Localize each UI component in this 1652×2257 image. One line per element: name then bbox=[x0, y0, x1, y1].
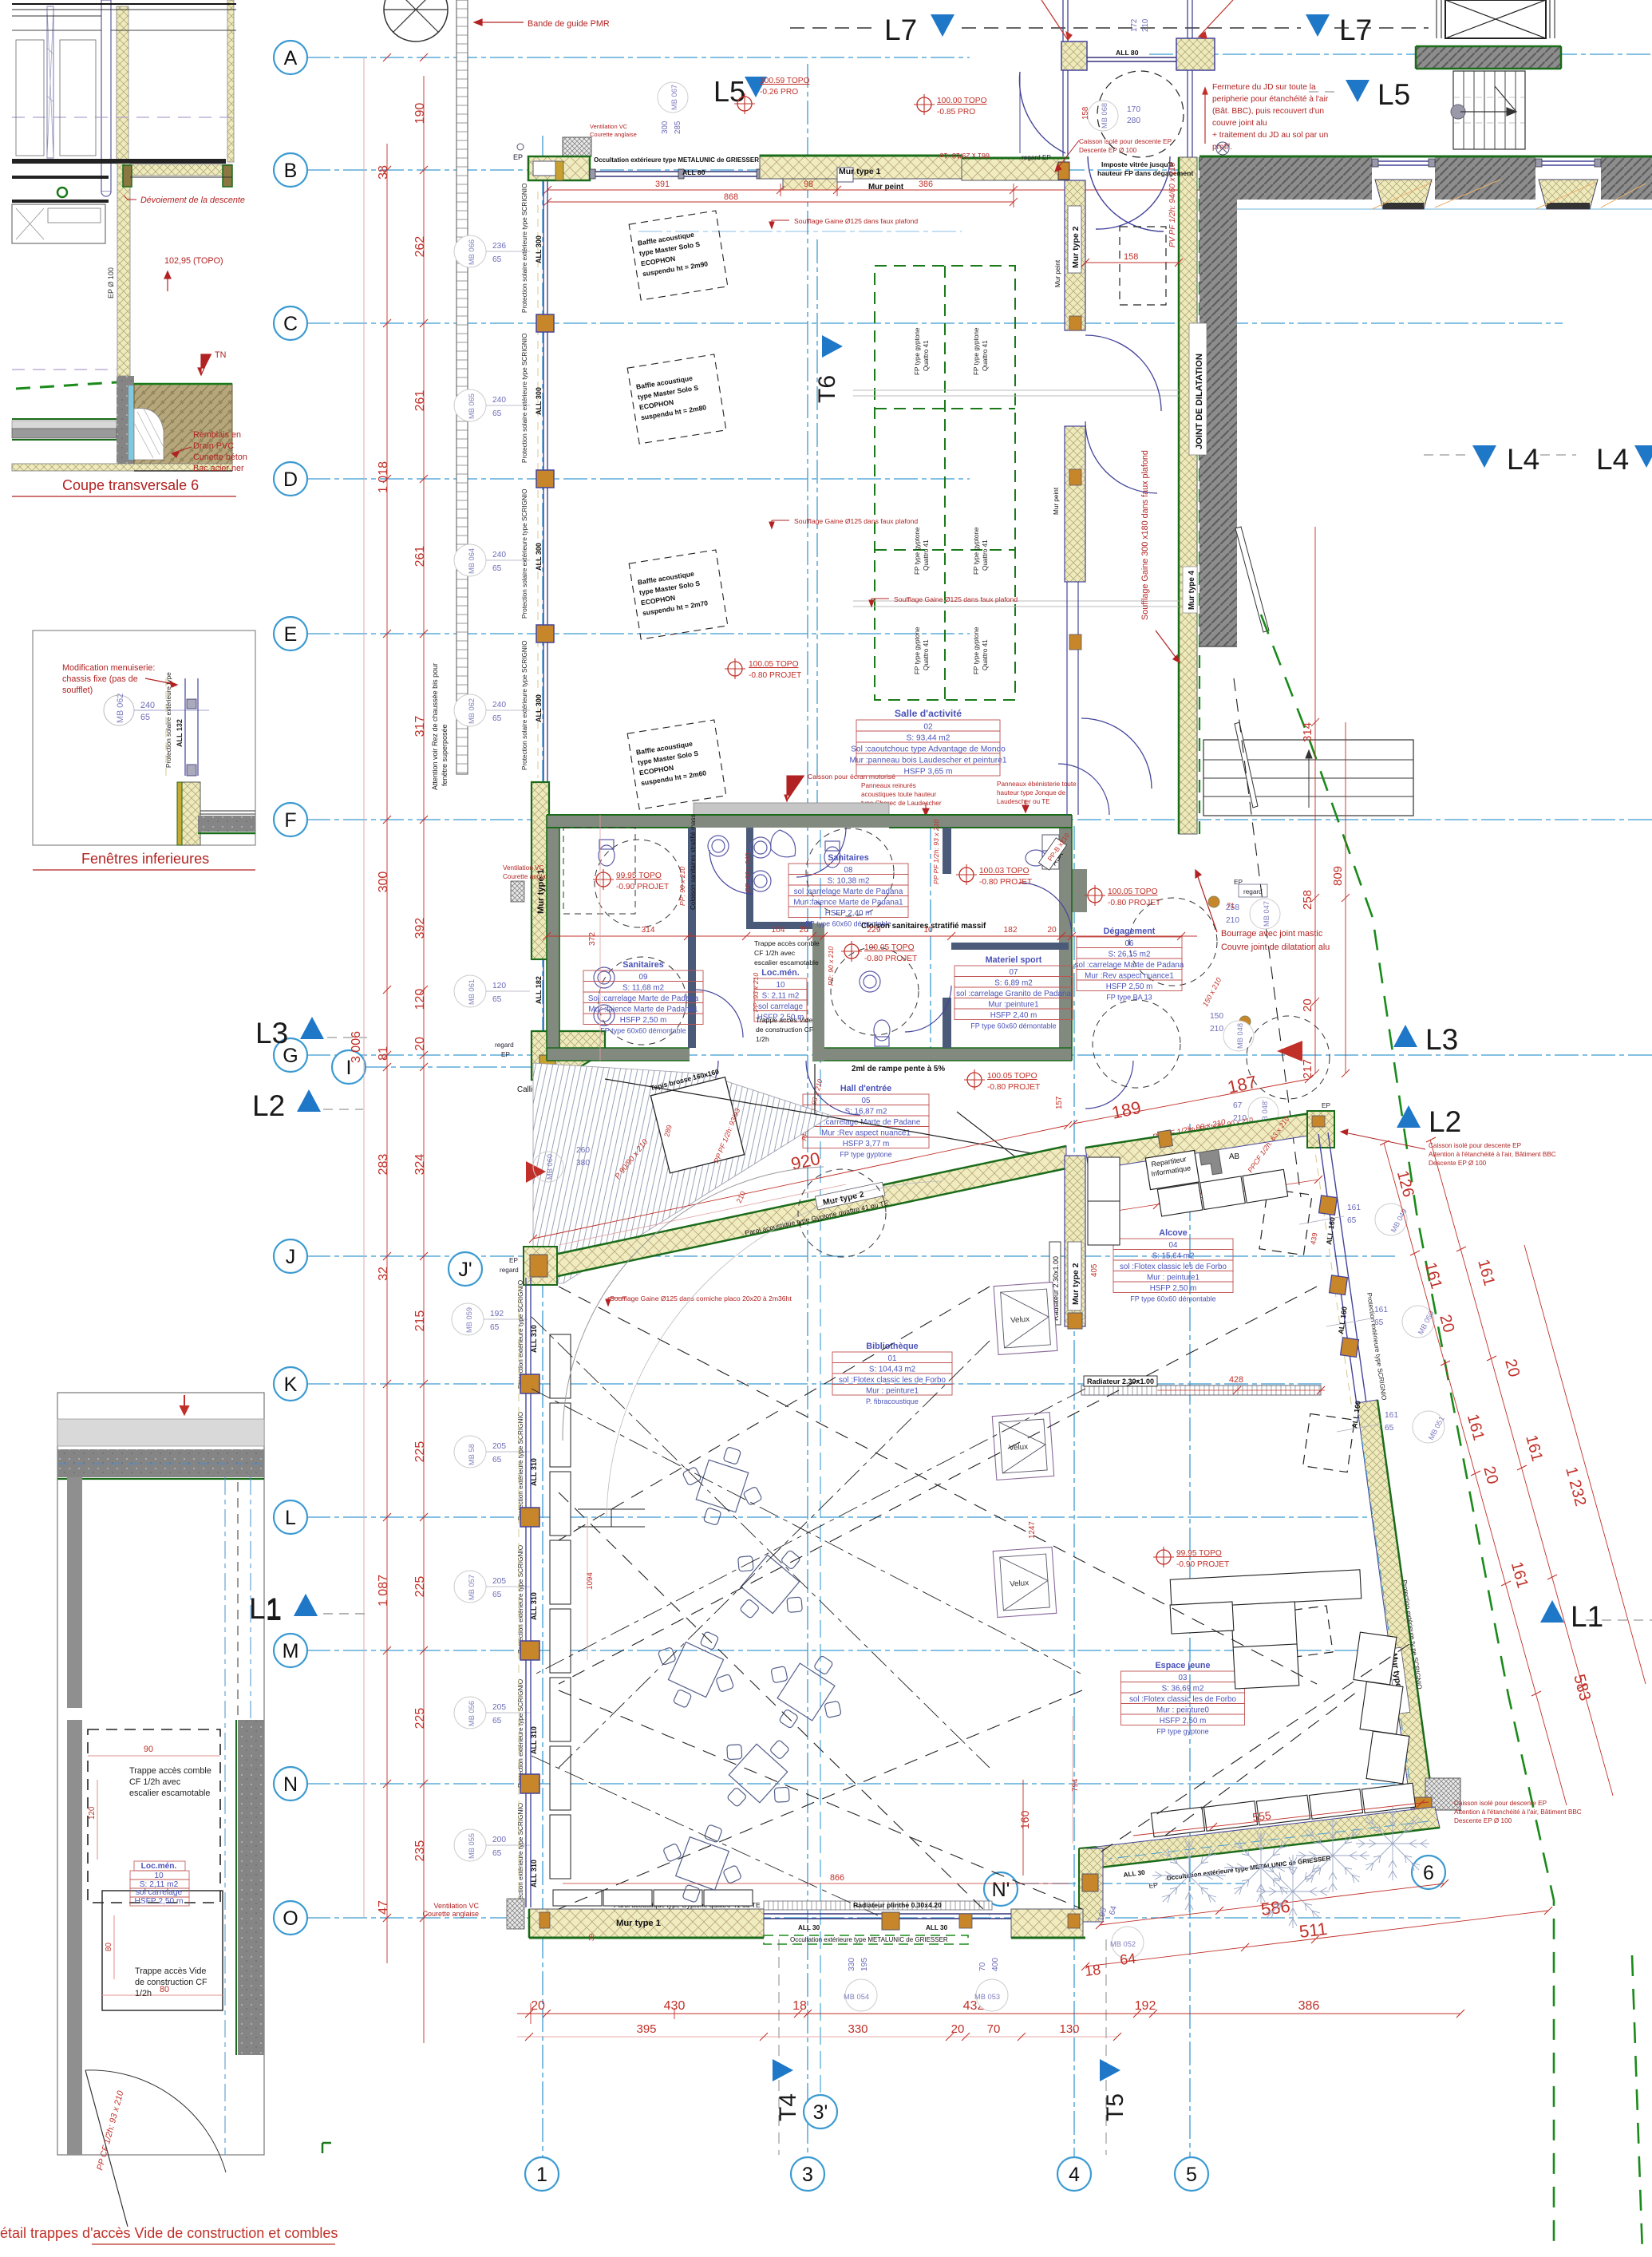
svg-text:Mur :Rev aspect nuancé1: Mur :Rev aspect nuancé1 bbox=[821, 1129, 911, 1138]
svg-text:20: 20 bbox=[1047, 926, 1057, 935]
svg-text:Protection extérieure type SCR: Protection extérieure type SCRIGNIO bbox=[517, 1803, 524, 1911]
svg-text:regard: regard bbox=[500, 1267, 519, 1274]
svg-text:Trappe accès comble: Trappe accès comble bbox=[129, 1766, 211, 1776]
svg-text:229: 229 bbox=[867, 926, 881, 935]
svg-text:99.95 TOPO: 99.95 TOPO bbox=[616, 872, 662, 880]
svg-text:Attention voir Rez de chaussée: Attention voir Rez de chaussée bis pour bbox=[431, 663, 439, 790]
svg-text:ALL 300: ALL 300 bbox=[535, 235, 543, 263]
svg-text:Sol :carrelage Marte de Padana: Sol :carrelage Marte de Padana bbox=[588, 994, 699, 1003]
svg-text:regard: regard bbox=[495, 1042, 514, 1049]
svg-text:sol :Flotex classic les de For: sol :Flotex classic les de Forbo bbox=[1120, 1263, 1227, 1271]
svg-text:FP type 60x60 démontable: FP type 60x60 démontable bbox=[970, 1022, 1056, 1030]
svg-text:sol carrelage: sol carrelage bbox=[136, 1888, 183, 1897]
svg-text:Laudescher ou TE: Laudescher ou TE bbox=[997, 798, 1050, 805]
svg-text:hauteur FP dans dégagement: hauteur FP dans dégagement bbox=[1097, 169, 1193, 177]
svg-text:-0.85 PRO: -0.85 PRO bbox=[937, 108, 975, 117]
svg-text:Mur type 2: Mur type 2 bbox=[1071, 226, 1081, 268]
svg-text:32: 32 bbox=[377, 1267, 390, 1281]
svg-text:Radiateur 2.30x1.00: Radiateur 2.30x1.00 bbox=[1087, 1378, 1154, 1385]
svg-text:FP type gyptone: FP type gyptone bbox=[973, 327, 980, 375]
svg-text:Mur :Rev aspect nuance1: Mur :Rev aspect nuance1 bbox=[1085, 972, 1174, 981]
svg-text:Soufflage Gaine Ø125 dans faux: Soufflage Gaine Ø125 dans faux plafond bbox=[794, 517, 918, 525]
svg-text:ALL 132: ALL 132 bbox=[176, 719, 184, 747]
svg-text:236: 236 bbox=[492, 242, 506, 251]
svg-text:300: 300 bbox=[377, 872, 390, 893]
svg-text:Occultation extérieure type ME: Occultation extérieure type METALUNIC de… bbox=[790, 1936, 948, 1943]
svg-text:FP type gyptone: FP type gyptone bbox=[914, 327, 921, 375]
svg-text:Descente EP Ø 100: Descente EP Ø 100 bbox=[1454, 1817, 1512, 1824]
svg-text:160: 160 bbox=[1018, 1810, 1031, 1829]
svg-text:Soufflage Gaine Ø125 dans faux: Soufflage Gaine Ø125 dans faux plafond bbox=[894, 595, 1018, 603]
svg-text:ALL 80: ALL 80 bbox=[682, 168, 705, 176]
svg-text:Bande de guide PMR: Bande de guide PMR bbox=[528, 19, 610, 29]
svg-text:Quattro 41: Quattro 41 bbox=[982, 639, 989, 670]
svg-text:06: 06 bbox=[1125, 939, 1134, 948]
svg-text:1 087: 1 087 bbox=[377, 1575, 390, 1607]
svg-text:S: 26,15 m2: S: 26,15 m2 bbox=[1109, 951, 1151, 959]
svg-text:20: 20 bbox=[1301, 998, 1314, 1012]
svg-text:FP type BA 13: FP type BA 13 bbox=[1106, 994, 1152, 1002]
svg-text:Couvre joint de dilatation alu: Couvre joint de dilatation alu bbox=[1221, 943, 1330, 952]
svg-text:130: 130 bbox=[1059, 2022, 1079, 2036]
svg-text:20: 20 bbox=[951, 2022, 965, 2036]
svg-text:MB 064: MB 064 bbox=[468, 548, 476, 574]
svg-text:T4: T4 bbox=[775, 2093, 801, 2121]
svg-text:L: L bbox=[285, 1507, 296, 1529]
svg-text:O: O bbox=[283, 1907, 298, 1930]
svg-text:JOINT DE DILATATION: JOINT DE DILATATION bbox=[1195, 354, 1204, 449]
svg-text:102,95 (TOPO): 102,95 (TOPO) bbox=[164, 256, 223, 266]
svg-text:330: 330 bbox=[848, 2022, 867, 2036]
svg-text:210: 210 bbox=[1141, 18, 1150, 32]
svg-text:99.95 TOPO: 99.95 TOPO bbox=[1176, 1549, 1222, 1558]
svg-text:FP type 60x60 démontable: FP type 60x60 démontable bbox=[1130, 1295, 1215, 1303]
svg-text:EP: EP bbox=[501, 1051, 510, 1058]
svg-text:-0.80 PROJET: -0.80 PROJET bbox=[864, 955, 917, 963]
svg-text:soufflet): soufflet) bbox=[62, 686, 93, 695]
svg-text:Cunette béton: Cunette béton bbox=[193, 453, 247, 462]
svg-text:Loc.mén.: Loc.mén. bbox=[141, 1862, 177, 1871]
svg-text:HSFP 2,40 m: HSFP 2,40 m bbox=[825, 909, 872, 918]
svg-text:Quattro 41: Quattro 41 bbox=[923, 340, 930, 371]
svg-text:Mur type 1: Mur type 1 bbox=[616, 1919, 661, 1928]
svg-text:MB 062: MB 062 bbox=[116, 694, 125, 723]
svg-text:65: 65 bbox=[492, 1591, 502, 1599]
svg-text:314: 314 bbox=[1301, 722, 1314, 742]
svg-text:MB 056: MB 056 bbox=[468, 1701, 476, 1726]
svg-text:400: 400 bbox=[991, 1958, 1000, 1971]
svg-text:428: 428 bbox=[1229, 1375, 1243, 1385]
svg-text:HSFP 3,65 m: HSFP 3,65 m bbox=[904, 768, 953, 777]
svg-text:Mur peint: Mur peint bbox=[1053, 487, 1060, 515]
svg-text:L4: L4 bbox=[1507, 443, 1539, 476]
svg-text:CF 1/2h avec: CF 1/2h avec bbox=[129, 1777, 181, 1787]
svg-text:L7: L7 bbox=[884, 14, 917, 46]
svg-text:escalier escamotable: escalier escamotable bbox=[754, 959, 819, 966]
svg-text:Bibliothèque: Bibliothèque bbox=[866, 1342, 918, 1351]
svg-text:MB 060: MB 060 bbox=[546, 1154, 554, 1180]
svg-text:18: 18 bbox=[792, 1999, 807, 2013]
svg-text:261: 261 bbox=[413, 390, 427, 412]
svg-text:258: 258 bbox=[1226, 903, 1239, 912]
svg-text:Attention à l'étanchéité à l'a: Attention à l'étanchéité à l'air, Bâtime… bbox=[1454, 1808, 1582, 1816]
svg-text:120: 120 bbox=[88, 1806, 97, 1820]
svg-text:L2: L2 bbox=[1429, 1105, 1461, 1138]
svg-text:372: 372 bbox=[588, 932, 597, 946]
svg-text:09: 09 bbox=[639, 973, 648, 982]
svg-text:235: 235 bbox=[413, 1840, 427, 1862]
svg-text:190: 190 bbox=[413, 103, 427, 125]
svg-text:200: 200 bbox=[492, 1836, 506, 1844]
svg-text:07: 07 bbox=[1010, 968, 1018, 977]
svg-text:65: 65 bbox=[492, 564, 502, 573]
svg-text:Caisson isolé pour descente EP: Caisson isolé pour descente EP bbox=[1079, 138, 1172, 145]
svg-text:-0.80 PROJET: -0.80 PROJET bbox=[979, 878, 1032, 887]
svg-text:MB 055: MB 055 bbox=[468, 1833, 476, 1859]
svg-text:couvre joint alu: couvre joint alu bbox=[1212, 119, 1267, 128]
svg-text:Quattro 41: Quattro 41 bbox=[923, 540, 930, 571]
svg-text:Modification menuiserie:: Modification menuiserie: bbox=[62, 663, 155, 673]
svg-text:809: 809 bbox=[1331, 866, 1345, 886]
svg-text:Quattro 41: Quattro 41 bbox=[982, 540, 989, 571]
svg-text:38: 38 bbox=[377, 165, 390, 180]
svg-text:FP type gyptone: FP type gyptone bbox=[914, 627, 921, 674]
svg-text:64: 64 bbox=[1119, 1951, 1136, 1968]
svg-text:MB 062: MB 062 bbox=[468, 698, 476, 724]
svg-text:81: 81 bbox=[377, 1046, 390, 1061]
svg-text:65: 65 bbox=[492, 995, 502, 1004]
svg-text:262: 262 bbox=[413, 236, 427, 258]
svg-text:MB 048: MB 048 bbox=[1236, 1023, 1244, 1049]
svg-text:158: 158 bbox=[1124, 252, 1138, 262]
svg-text:E: E bbox=[284, 623, 298, 646]
svg-text:20: 20 bbox=[531, 1999, 545, 2013]
svg-text:150: 150 bbox=[1210, 1012, 1223, 1021]
svg-text:104: 104 bbox=[772, 926, 785, 935]
svg-text:C: C bbox=[283, 313, 298, 335]
svg-text:MB 052: MB 052 bbox=[1110, 1940, 1136, 1948]
svg-text:FP type gyptone: FP type gyptone bbox=[840, 1151, 891, 1159]
svg-text:N: N bbox=[283, 1773, 298, 1796]
svg-text:Mur type 2: Mur type 2 bbox=[1071, 1263, 1081, 1305]
svg-text:sol :carrelage Marte de Padana: sol :carrelage Marte de Padana bbox=[794, 887, 903, 896]
svg-text:S: 11,68 m2: S: 11,68 m2 bbox=[622, 984, 664, 993]
svg-text:205: 205 bbox=[492, 1703, 506, 1712]
svg-text:65: 65 bbox=[492, 714, 502, 723]
svg-text:Protection extérieure type SCR: Protection extérieure type SCRIGNIO bbox=[517, 1545, 524, 1654]
svg-text:S: 15,64 m2: S: 15,64 m2 bbox=[1152, 1252, 1195, 1261]
svg-text:MB 068: MB 068 bbox=[1101, 103, 1109, 128]
svg-text:Remblais en: Remblais en bbox=[193, 430, 241, 440]
svg-text:205: 205 bbox=[492, 1442, 506, 1451]
svg-text:Velux: Velux bbox=[1010, 1315, 1030, 1326]
svg-text:100.00 TOPO: 100.00 TOPO bbox=[937, 97, 987, 105]
svg-text:F: F bbox=[284, 809, 296, 832]
svg-text:Mur : peinture1: Mur : peinture1 bbox=[1147, 1274, 1199, 1283]
svg-text:MB 059: MB 059 bbox=[465, 1307, 473, 1333]
svg-text:MB 054: MB 054 bbox=[844, 1993, 869, 2001]
svg-text:157: 157 bbox=[1055, 1097, 1064, 1109]
svg-text:Mur type 1: Mur type 1 bbox=[839, 167, 881, 176]
svg-text:380: 380 bbox=[576, 1159, 590, 1168]
svg-text:ALL 182: ALL 182 bbox=[535, 976, 543, 1004]
svg-text:Sanitaires: Sanitaires bbox=[622, 960, 664, 970]
svg-text:J': J' bbox=[458, 1259, 472, 1281]
svg-text:Alcove: Alcove bbox=[1159, 1228, 1187, 1238]
svg-text:Mur :peinture1: Mur :peinture1 bbox=[988, 1001, 1038, 1010]
svg-text:fenêtre superposée: fenêtre superposée bbox=[441, 724, 449, 786]
svg-text:L2: L2 bbox=[252, 1089, 285, 1122]
svg-text:EP Ø 100: EP Ø 100 bbox=[107, 267, 115, 298]
svg-text:20: 20 bbox=[413, 1037, 427, 1051]
svg-text:Drain PVC: Drain PVC bbox=[193, 441, 234, 451]
svg-text:Courette anglaise: Courette anglaise bbox=[422, 1910, 479, 1918]
svg-text:Occultation extérieure type ME: Occultation extérieure type METALUNIC de… bbox=[594, 156, 759, 164]
svg-text:Velux: Velux bbox=[1009, 1443, 1029, 1453]
svg-text:Coloison sanitaires stratifié: Coloison sanitaires stratifié mass bbox=[690, 814, 697, 910]
svg-text:182: 182 bbox=[1004, 926, 1018, 935]
svg-text:300: 300 bbox=[661, 121, 670, 134]
svg-text:10: 10 bbox=[923, 926, 933, 935]
svg-text:MB 065: MB 065 bbox=[468, 393, 476, 419]
svg-text:1 018: 1 018 bbox=[377, 461, 390, 493]
svg-text:Salle d'activité: Salle d'activité bbox=[895, 708, 962, 719]
svg-text:Coupe transversale 6: Coupe transversale 6 bbox=[62, 477, 199, 493]
svg-text:03: 03 bbox=[1179, 1674, 1188, 1682]
svg-text:Panneaux reinurés: Panneaux reinurés bbox=[861, 782, 916, 789]
svg-text:sol carrelage: sol carrelage bbox=[758, 1002, 804, 1011]
svg-text:TN: TN bbox=[215, 350, 226, 360]
svg-text:ALL 300: ALL 300 bbox=[535, 387, 543, 415]
svg-text:FP type gyptone: FP type gyptone bbox=[914, 527, 921, 575]
svg-text:S: 16,87 m2: S: 16,87 m2 bbox=[845, 1108, 887, 1117]
svg-text:Radiateur plinthe 0.30x4.20: Radiateur plinthe 0.30x4.20 bbox=[853, 1901, 942, 1909]
svg-text:+ traitement du JD au sol par: + traitement du JD au sol par un bbox=[1212, 131, 1328, 140]
svg-text:868: 868 bbox=[724, 192, 738, 202]
svg-text:PP PF 1/2h: 93 x 210: PP PF 1/2h: 93 x 210 bbox=[932, 820, 940, 884]
svg-text:08: 08 bbox=[844, 866, 853, 875]
svg-text:acoustiques toute hauteur: acoustiques toute hauteur bbox=[861, 791, 936, 798]
svg-text:sol :Flotex classic les de For: sol :Flotex classic les de Forbo bbox=[839, 1376, 946, 1385]
svg-text:de construction CF: de construction CF bbox=[756, 1026, 813, 1034]
svg-text:FP type gyptone: FP type gyptone bbox=[1156, 1728, 1208, 1736]
svg-text:EP: EP bbox=[509, 1257, 518, 1264]
svg-text:2ml de rampe pente à 5%: 2ml de rampe pente à 5% bbox=[852, 1065, 945, 1073]
svg-text:Caisson pour écran motorisé: Caisson pour écran motorisé bbox=[808, 773, 895, 781]
svg-text:-0.90 PROJET: -0.90 PROJET bbox=[616, 883, 669, 891]
svg-text:FP type 60x60 démontable: FP type 60x60 démontable bbox=[600, 1027, 686, 1035]
svg-text:regard EP: regard EP bbox=[1022, 154, 1051, 161]
svg-text:L3: L3 bbox=[255, 1017, 288, 1049]
svg-text:EP: EP bbox=[513, 153, 523, 161]
svg-text:MB 057: MB 057 bbox=[468, 1575, 476, 1600]
svg-text:Caisson isolé pour descente EP: Caisson isolé pour descente EP bbox=[1454, 1800, 1547, 1807]
svg-text:210: 210 bbox=[1210, 1025, 1223, 1034]
svg-text:161: 161 bbox=[1347, 1204, 1361, 1212]
svg-text:-0.26 PRO: -0.26 PRO bbox=[760, 88, 798, 97]
svg-text:Quattro 41: Quattro 41 bbox=[982, 340, 989, 371]
svg-text:6: 6 bbox=[1423, 1862, 1434, 1884]
svg-text:MB 067: MB 067 bbox=[670, 85, 678, 110]
svg-text:L7: L7 bbox=[1339, 14, 1372, 46]
svg-text:Bourrage avec joint mastic: Bourrage avec joint mastic bbox=[1221, 929, 1323, 939]
svg-text:PP: 90 x 210: PP: 90 x 210 bbox=[827, 947, 835, 986]
svg-text:67: 67 bbox=[1233, 1101, 1243, 1110]
svg-text:100.05 TOPO: 100.05 TOPO bbox=[864, 943, 915, 952]
svg-text:PP: 90 x 210: PP: 90 x 210 bbox=[678, 867, 686, 906]
svg-text:A: A bbox=[284, 47, 298, 69]
svg-text:65: 65 bbox=[1385, 1424, 1394, 1433]
svg-text:240: 240 bbox=[492, 396, 506, 405]
svg-text:L4: L4 bbox=[1596, 443, 1629, 476]
svg-text:sol :carrelage Granito de Pada: sol :carrelage Granito de Padana bbox=[956, 990, 1071, 998]
svg-text:Protection extérieure type SCR: Protection extérieure type SCRIGNIO bbox=[517, 1280, 524, 1389]
svg-text:Protection extérieure type SCR: Protection extérieure type SCRIGNIO bbox=[517, 1679, 524, 1788]
svg-text:05: 05 bbox=[862, 1097, 871, 1105]
svg-text:100.05 TOPO: 100.05 TOPO bbox=[749, 660, 799, 669]
svg-text:391: 391 bbox=[655, 180, 670, 189]
svg-text:sol :carrelage Marte de Padana: sol :carrelage Marte de Padana bbox=[1075, 961, 1184, 970]
svg-text:225: 225 bbox=[413, 1441, 427, 1463]
svg-text:-0.90 PROJET: -0.90 PROJET bbox=[1176, 1560, 1229, 1569]
svg-text:EP: EP bbox=[1322, 1102, 1330, 1109]
svg-text:escalier escamotable: escalier escamotable bbox=[129, 1789, 210, 1798]
svg-text:330: 330 bbox=[848, 1958, 856, 1971]
svg-text:Protection solaire extérieure: Protection solaire extérieure type SCRIG… bbox=[521, 489, 528, 619]
svg-text:195: 195 bbox=[860, 1958, 869, 1971]
svg-text:317: 317 bbox=[413, 716, 427, 737]
svg-text:-0.80 PROJET: -0.80 PROJET bbox=[749, 671, 801, 680]
svg-text:395: 395 bbox=[636, 2022, 656, 2036]
svg-text:T5: T5 bbox=[1102, 2093, 1128, 2121]
svg-text:Mur type 4: Mur type 4 bbox=[1188, 570, 1196, 610]
svg-text:Mur :panneau bois Laudescher e: Mur :panneau bois Laudescher et peinture… bbox=[849, 757, 1006, 765]
svg-text:M: M bbox=[283, 1640, 299, 1662]
svg-text:L5: L5 bbox=[1377, 78, 1410, 111]
svg-text:39: 39 bbox=[588, 1933, 595, 1941]
svg-text:4: 4 bbox=[1069, 2164, 1080, 2186]
svg-text:Loc.mén.: Loc.mén. bbox=[761, 968, 799, 978]
svg-text:100.05 TOPO: 100.05 TOPO bbox=[987, 1072, 1037, 1081]
svg-text:10: 10 bbox=[154, 1872, 164, 1880]
svg-text:90: 90 bbox=[144, 1745, 153, 1754]
svg-text:210: 210 bbox=[1226, 916, 1239, 925]
svg-text:225: 225 bbox=[413, 1708, 427, 1729]
svg-text:de construction CF: de construction CF bbox=[135, 1978, 207, 1987]
svg-text:regard: regard bbox=[1243, 888, 1263, 895]
svg-text:100.03 TOPO: 100.03 TOPO bbox=[979, 867, 1030, 876]
svg-text:240: 240 bbox=[492, 701, 506, 710]
svg-text:280: 280 bbox=[1127, 117, 1140, 125]
svg-text:215: 215 bbox=[413, 1310, 427, 1332]
svg-text:L1: L1 bbox=[249, 1592, 282, 1625]
svg-text:Sanitaires: Sanitaires bbox=[828, 853, 869, 863]
svg-text:sol :Flotex classic les de For: sol :Flotex classic les de Forbo bbox=[1129, 1695, 1236, 1704]
svg-text:FP type gyptone: FP type gyptone bbox=[973, 527, 980, 575]
svg-text:158: 158 bbox=[1081, 106, 1090, 120]
svg-text:283: 283 bbox=[377, 1154, 390, 1176]
svg-text:MB 047: MB 047 bbox=[1263, 901, 1271, 927]
svg-text:1/2h: 1/2h bbox=[756, 1035, 769, 1043]
svg-text:65: 65 bbox=[492, 255, 502, 264]
svg-text:225: 225 bbox=[413, 1576, 427, 1598]
svg-text:120: 120 bbox=[413, 989, 427, 1010]
svg-text:FP type gyptone: FP type gyptone bbox=[973, 627, 980, 674]
svg-text:Mur :faience Marte de Padana1: Mur :faience Marte de Padana1 bbox=[588, 1006, 698, 1014]
svg-text:S: 104,43 m2: S: 104,43 m2 bbox=[869, 1366, 915, 1374]
svg-text:PP: 93 x 210: PP: 93 x 210 bbox=[752, 973, 760, 1012]
svg-text:65: 65 bbox=[140, 713, 150, 722]
svg-text:(Bât. BBC), puis recouvert d'u: (Bât. BBC), puis recouvert d'un bbox=[1212, 107, 1324, 116]
svg-text:5: 5 bbox=[1186, 2164, 1197, 2186]
svg-text:S: 36,69 m2: S: 36,69 m2 bbox=[1162, 1685, 1204, 1694]
svg-text:386: 386 bbox=[1298, 1999, 1320, 2013]
svg-text:Protection solaire extérieure: Protection solaire extérieure type SCRIG… bbox=[521, 184, 528, 313]
svg-text:Imposte vitrée jusqu'à: Imposte vitrée jusqu'à bbox=[1101, 160, 1174, 168]
svg-text:ALL 30: ALL 30 bbox=[926, 1924, 948, 1931]
svg-text:MB 053: MB 053 bbox=[974, 1993, 1000, 2001]
svg-text:240: 240 bbox=[140, 701, 155, 710]
svg-text:sol :carrelage Marte de Padane: sol :carrelage Marte de Padane bbox=[812, 1118, 921, 1127]
svg-text:L5: L5 bbox=[713, 75, 745, 108]
svg-text:192: 192 bbox=[1135, 1999, 1156, 2013]
svg-text:AB: AB bbox=[1229, 1152, 1240, 1161]
svg-text:285: 285 bbox=[674, 121, 682, 134]
svg-text:MB 58: MB 58 bbox=[468, 1444, 476, 1465]
svg-text:210: 210 bbox=[1233, 1114, 1247, 1123]
svg-text:Espace jeune: Espace jeune bbox=[1155, 1661, 1210, 1670]
svg-text:Ventilation VC: Ventilation VC bbox=[503, 864, 544, 872]
svg-text:65: 65 bbox=[1347, 1216, 1357, 1225]
svg-text:Mur : peinture1: Mur : peinture1 bbox=[866, 1387, 919, 1396]
svg-text:65: 65 bbox=[492, 409, 502, 418]
svg-text:Soufflage Gaine Ø125 dans corn: Soufflage Gaine Ø125 dans corniche placo… bbox=[610, 1295, 792, 1302]
svg-text:10: 10 bbox=[777, 981, 785, 990]
svg-text:192: 192 bbox=[490, 1310, 504, 1318]
svg-text:T6: T6 bbox=[814, 375, 840, 403]
svg-text:Protection solaire extérieure: Protection solaire extérieure type SCRIG… bbox=[521, 641, 528, 770]
svg-text:PP: 80 x 240: PP: 80 x 240 bbox=[744, 853, 752, 892]
svg-text:205: 205 bbox=[492, 1577, 506, 1586]
svg-text:Hall d'entrée: Hall d'entrée bbox=[840, 1084, 891, 1093]
svg-text:Materiel sport: Materiel sport bbox=[986, 955, 1042, 965]
svg-text:Protection extérieure type SCR: Protection extérieure type SCRIGNIO bbox=[517, 1412, 524, 1520]
svg-text:HSFP 2,40 m: HSFP 2,40 m bbox=[990, 1011, 1037, 1020]
svg-text:1247: 1247 bbox=[1028, 1521, 1037, 1539]
svg-text:Trappe accès comble: Trappe accès comble bbox=[754, 939, 820, 947]
svg-text:P. fibracoustique: P. fibracoustique bbox=[866, 1397, 919, 1405]
svg-text:peripherie pour étanchéité à l: peripherie pour étanchéité à l'air bbox=[1212, 95, 1329, 104]
svg-text:Velux: Velux bbox=[1010, 1579, 1030, 1589]
svg-text:Bac acier ner: Bac acier ner bbox=[193, 464, 244, 473]
svg-text:HSFP 2,50 m: HSFP 2,50 m bbox=[135, 1897, 184, 1906]
svg-text:HSFP 3,77 m: HSFP 3,77 m bbox=[843, 1140, 890, 1148]
svg-text:étail trappes d'accès Vide de: étail trappes d'accès Vide de constructi… bbox=[0, 2225, 338, 2241]
svg-text:S: 6,89 m2: S: 6,89 m2 bbox=[994, 979, 1032, 988]
svg-text:Trappe accès Vide: Trappe accès Vide bbox=[756, 1016, 812, 1024]
svg-text:20: 20 bbox=[799, 926, 808, 935]
svg-text:170: 170 bbox=[1127, 105, 1140, 114]
svg-text:HSFP 2,50 m: HSFP 2,50 m bbox=[620, 1016, 667, 1025]
svg-text:3 006: 3 006 bbox=[350, 1031, 363, 1063]
svg-text:Dévoiement de la descente: Dévoiement de la descente bbox=[140, 196, 245, 205]
svg-text:Descente EP Ø 100: Descente EP Ø 100 bbox=[1079, 147, 1137, 154]
svg-text:chassis fixe (pas de: chassis fixe (pas de bbox=[62, 674, 138, 684]
svg-text:Ventilation VC: Ventilation VC bbox=[433, 1902, 479, 1910]
svg-text:ALL 300: ALL 300 bbox=[535, 694, 543, 722]
svg-text:S: 93,44 m2: S: 93,44 m2 bbox=[907, 734, 950, 743]
svg-text:N': N' bbox=[992, 1879, 1010, 1901]
